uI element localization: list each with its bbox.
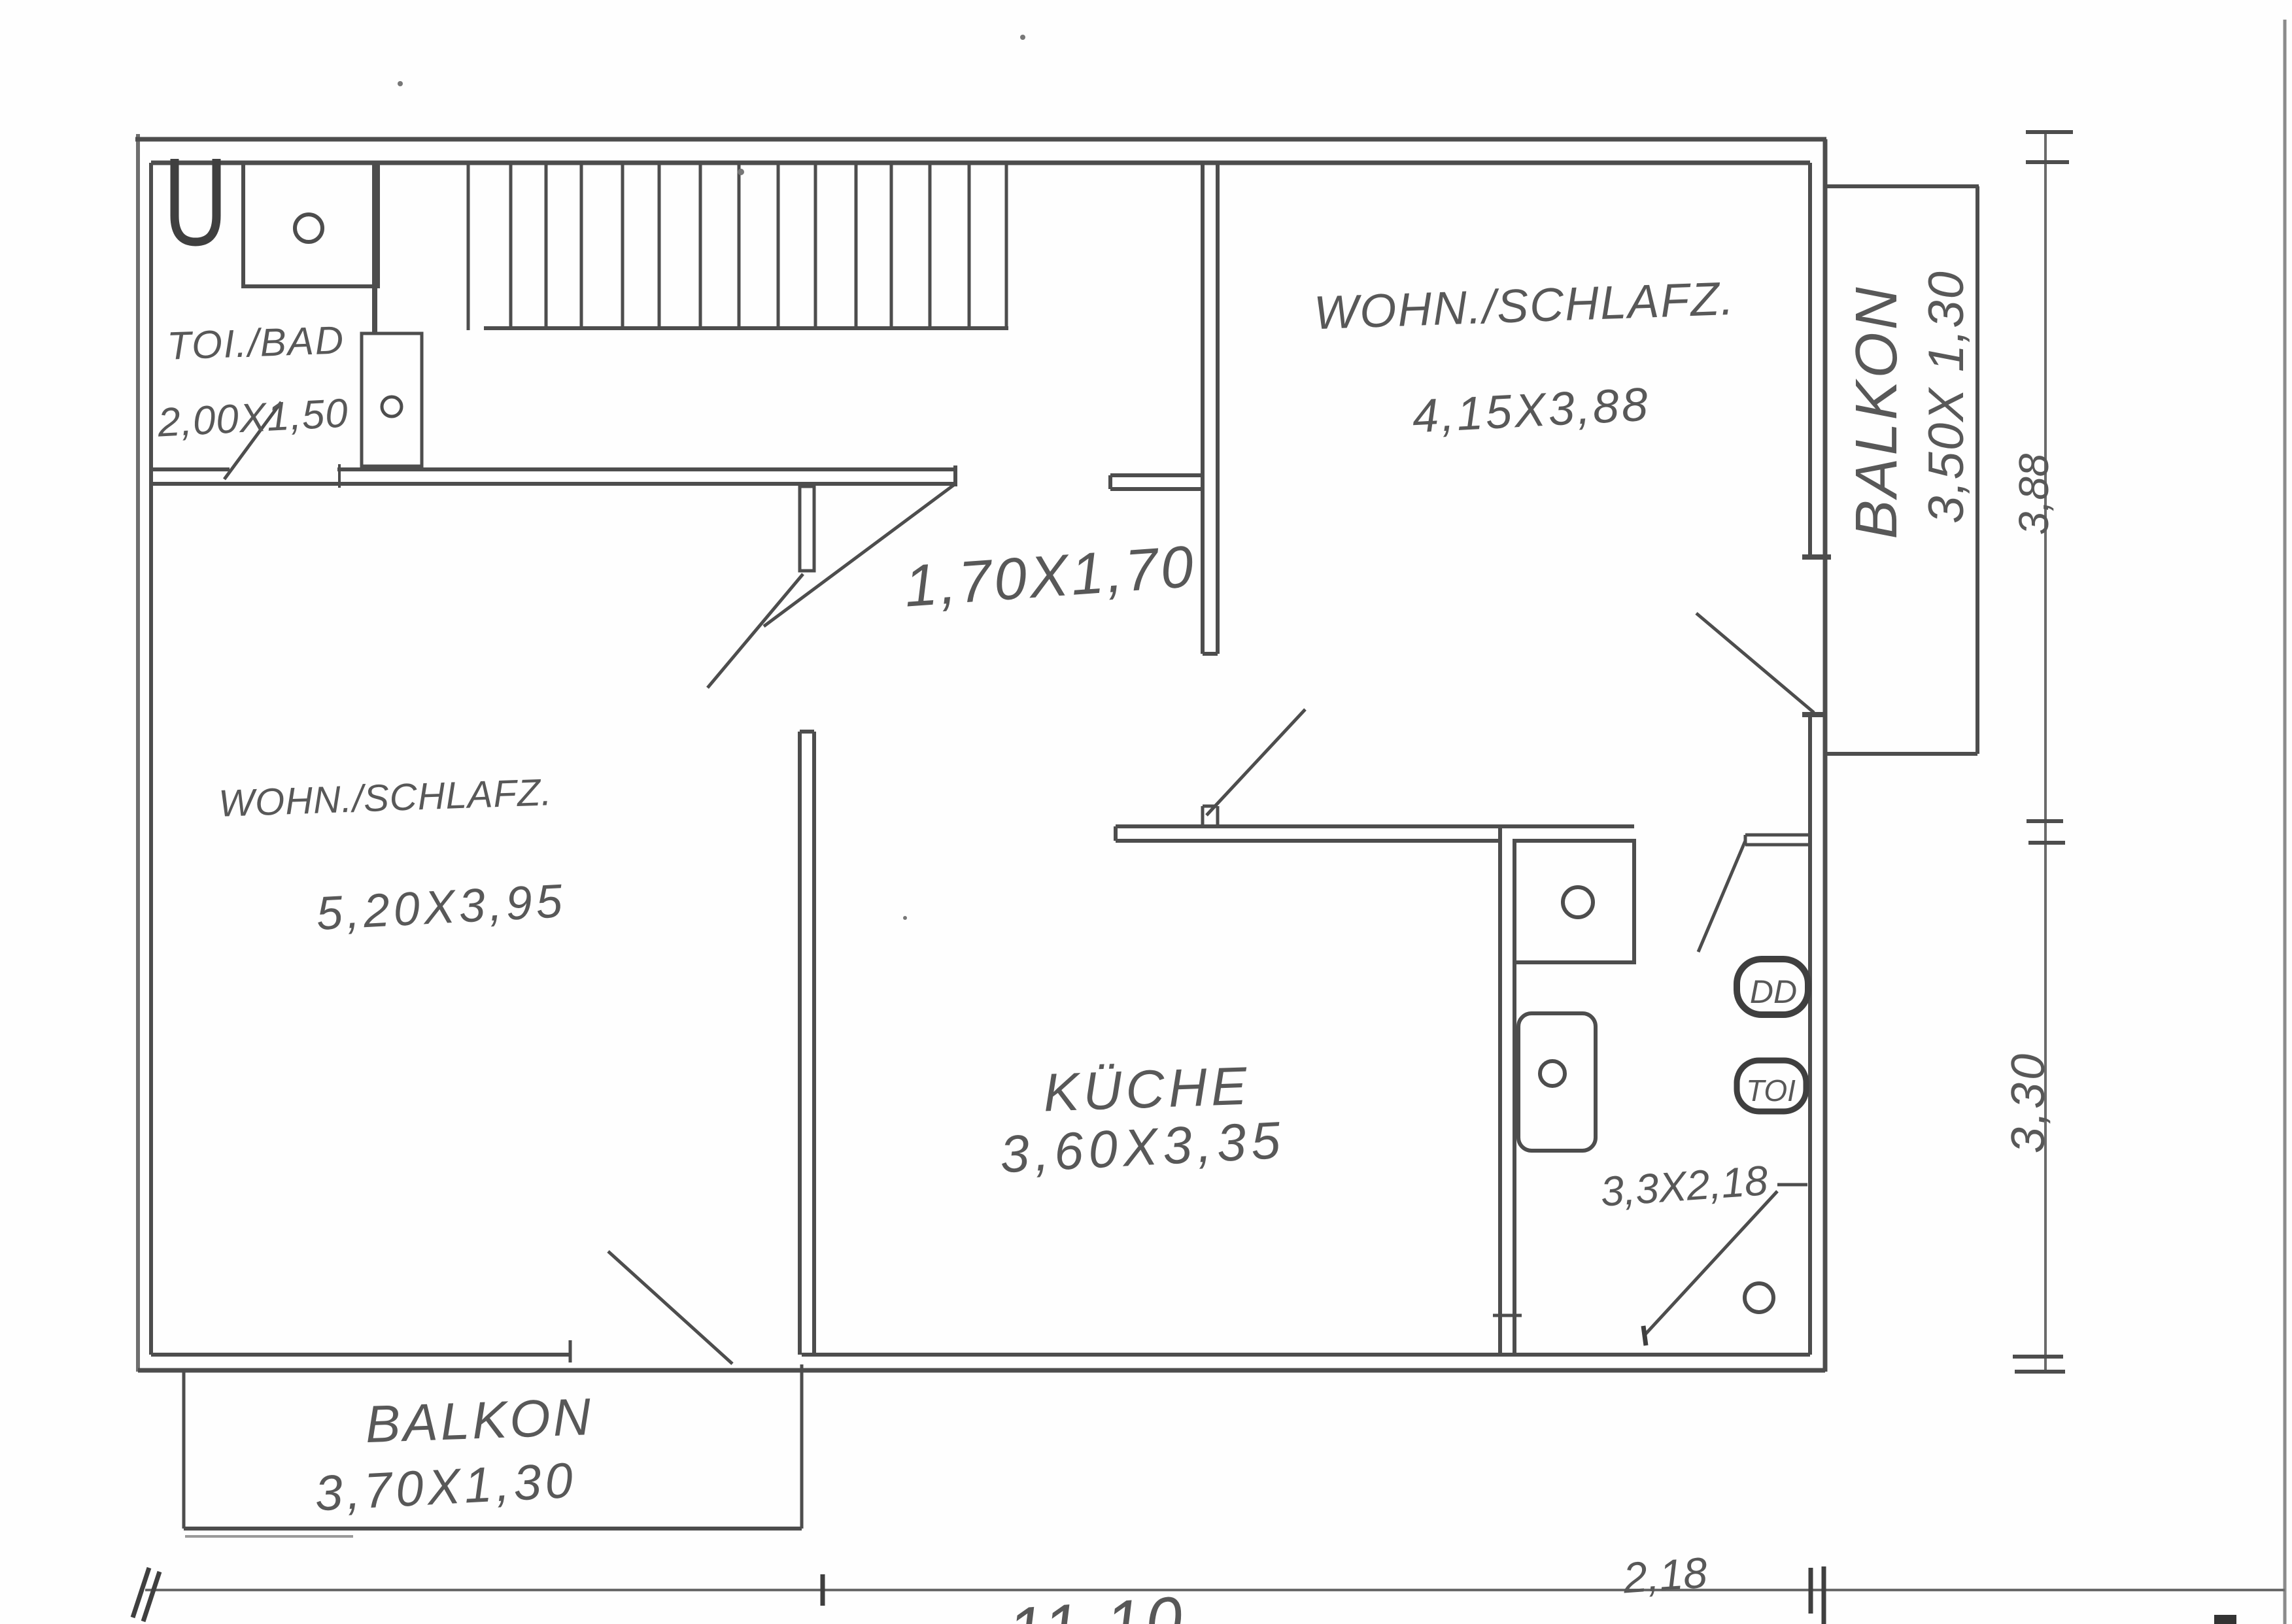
svg-text:TOI./BAD: TOI./BAD <box>166 318 345 367</box>
svg-text:DD: DD <box>1750 973 1797 1010</box>
svg-text:BALKON: BALKON <box>1844 284 1909 539</box>
svg-text:TOI: TOI <box>1746 1074 1796 1108</box>
svg-text:2,18: 2,18 <box>1621 1548 1709 1602</box>
svg-text:KÜCHE: KÜCHE <box>1042 1057 1252 1123</box>
svg-text:3,50X 1,30: 3,50X 1,30 <box>1919 270 1974 524</box>
svg-text:BALKON: BALKON <box>364 1387 594 1453</box>
svg-text:3,30: 3,30 <box>2002 1051 2055 1153</box>
svg-text:3,88: 3,88 <box>2010 453 2057 535</box>
